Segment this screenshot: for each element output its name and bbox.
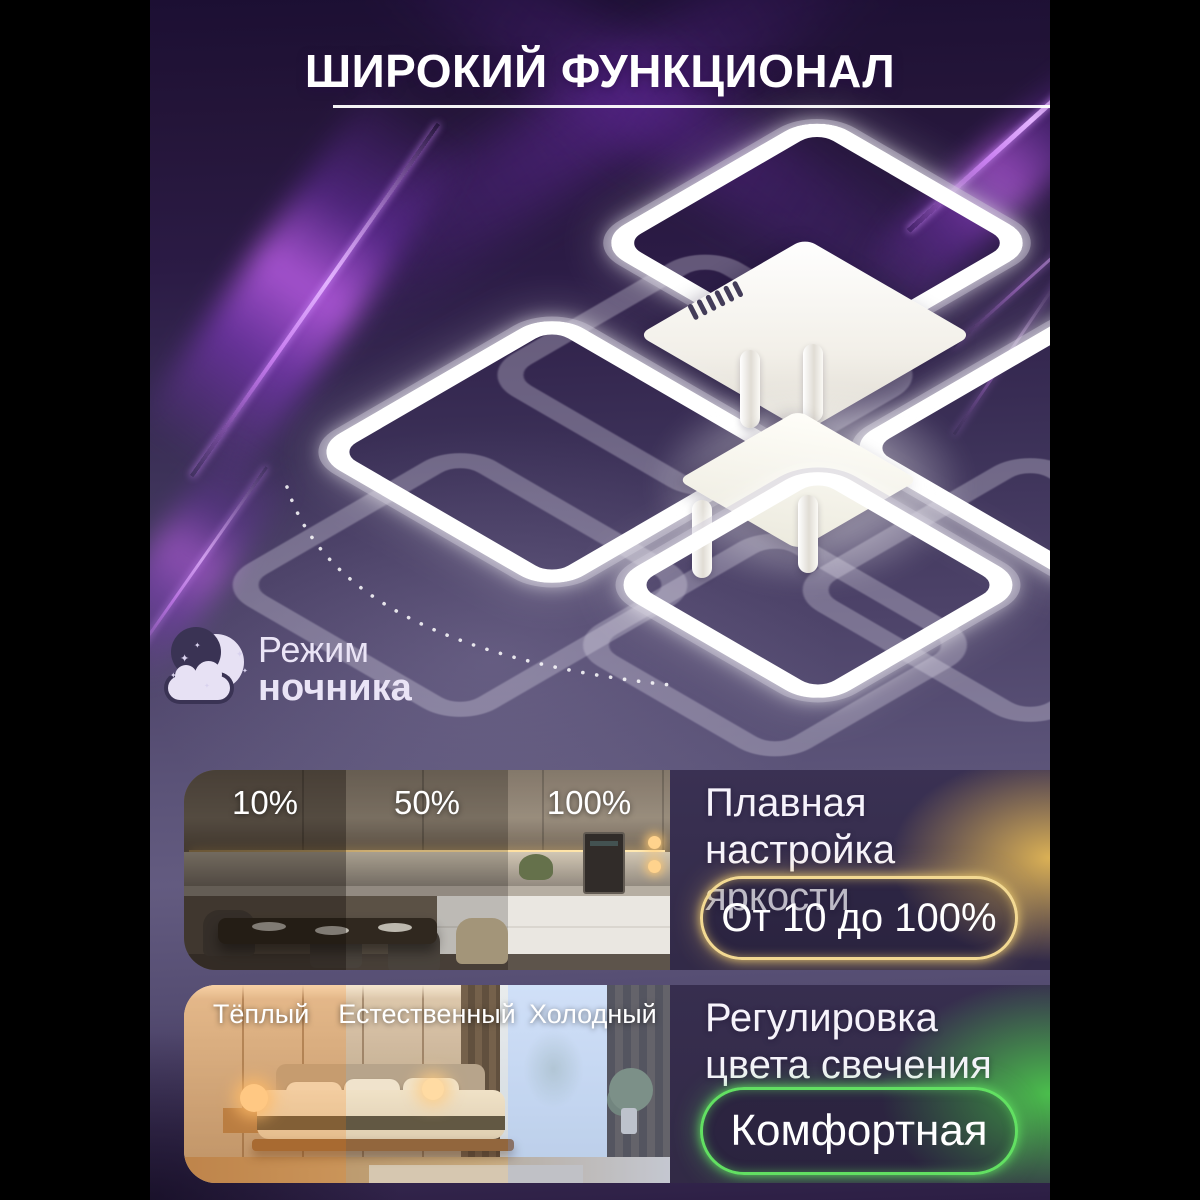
night-mode-word1: Режим xyxy=(258,631,412,669)
color-label-natural: Естественный xyxy=(338,999,516,1030)
night-mode-icon: ✦ ✦ ✦ ✦ ✦ ✦ xyxy=(164,628,248,712)
bedroom-photo: Тёплый Естественный Холодный xyxy=(184,985,670,1183)
star-icon: ✦ xyxy=(242,668,248,675)
star-icon: ✦ xyxy=(180,654,189,665)
page-title: ШИРОКИЙ ФУНКЦИОНАЛ xyxy=(150,44,1050,98)
brightness-label-50: 50% xyxy=(346,784,508,822)
brightness-row: 10% 50% 100% Плавная настройка яркости О… xyxy=(184,770,1050,970)
brightness-label-10: 10% xyxy=(184,784,346,822)
lamp-rod xyxy=(740,350,760,428)
lamp-rod xyxy=(803,344,823,422)
color-temp-labels: Тёплый Естественный Холодный xyxy=(184,999,670,1030)
night-mode-word2: ночника xyxy=(258,669,412,709)
color-temp-heading: Регулировка цвета свечения xyxy=(705,995,1050,1089)
color-temp-badge: Комфортная xyxy=(700,1087,1018,1175)
star-icon: ✦ xyxy=(204,683,210,690)
brightness-range-badge: От 10 до 100% xyxy=(700,876,1018,960)
color-label-warm: Тёплый xyxy=(184,999,338,1030)
feature-rows: 10% 50% 100% Плавная настройка яркости О… xyxy=(184,770,1050,1183)
star-icon: ✦ xyxy=(170,672,177,680)
star-icon: ✦ xyxy=(194,642,201,650)
color-temp-text-panel: Регулировка цвета свечения Комфортная xyxy=(670,985,1050,1183)
star-icon: ✦ xyxy=(236,650,244,659)
night-mode-block: ✦ ✦ ✦ ✦ ✦ ✦ Режим ночника xyxy=(164,628,412,712)
color-label-cold: Холодный xyxy=(516,999,670,1030)
brightness-text-panel: Плавная настройка яркости От 10 до 100% xyxy=(670,770,1050,970)
color-temp-heading-line1: Регулировка xyxy=(705,995,1050,1042)
product-card: ШИРОКИЙ ФУНКЦИОНАЛ xyxy=(0,0,1200,1200)
brightness-heading-line1: Плавная настройка xyxy=(705,780,1050,874)
kitchen-photo: 10% 50% 100% xyxy=(184,770,670,970)
artwork-area: ШИРОКИЙ ФУНКЦИОНАЛ xyxy=(150,0,1050,1200)
color-temp-row: Тёплый Естественный Холодный Регулировка… xyxy=(184,985,1050,1183)
title-underline xyxy=(333,105,1050,108)
cloud-icon xyxy=(168,676,230,700)
color-temp-heading-line2: цвета свечения xyxy=(705,1042,1050,1089)
brightness-labels: 10% 50% 100% xyxy=(184,784,670,822)
brightness-label-100: 100% xyxy=(508,784,670,822)
